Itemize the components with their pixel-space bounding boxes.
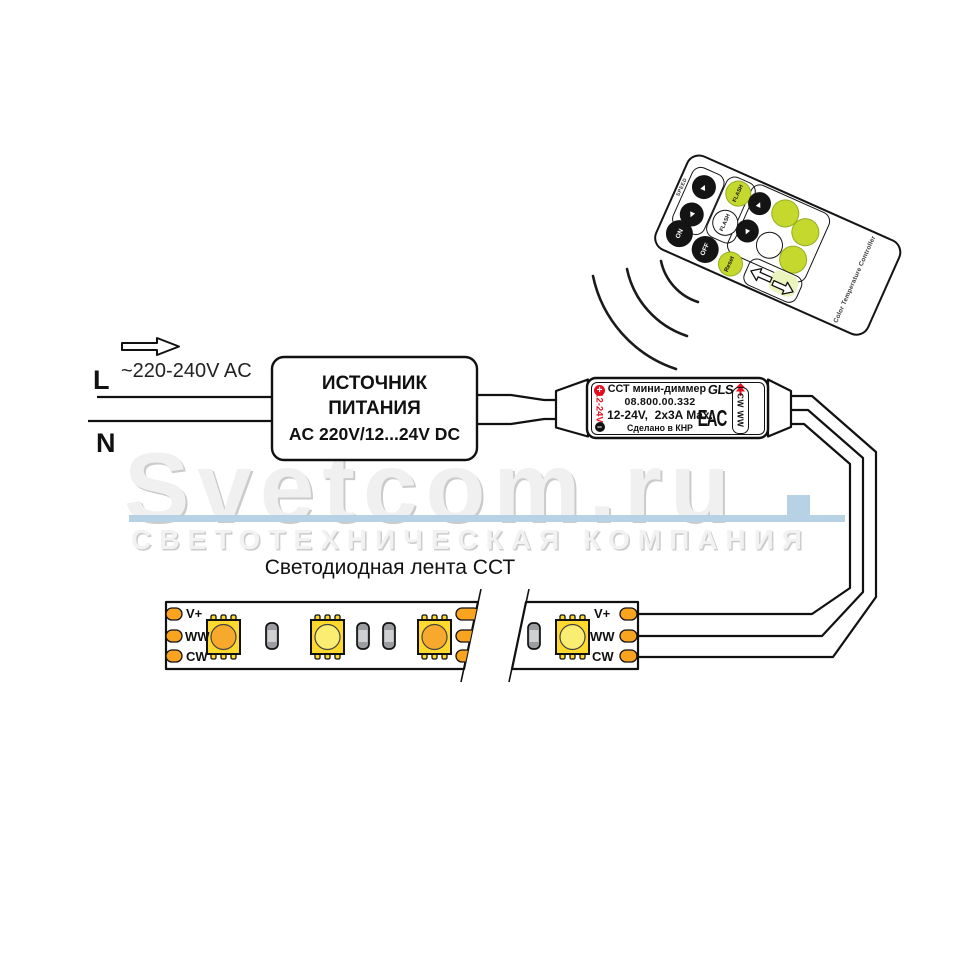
- dimmer-label: + 12-24V − ССТ мини-диммер GLS 08.800.00…: [587, 378, 768, 438]
- resistor: [383, 623, 395, 649]
- on-button-label: ON: [674, 228, 684, 240]
- pad-cw: [166, 650, 182, 662]
- psu-output-wire-bottom: [477, 419, 557, 424]
- pad-ww: [620, 630, 637, 642]
- psu-output-wire-top: [477, 395, 557, 400]
- dimmer-lead-left: [556, 380, 588, 437]
- pad-vplus: [620, 608, 637, 620]
- output-wire-inner: [637, 424, 850, 614]
- dimmer-lead-right: [768, 380, 791, 437]
- resistor: [528, 623, 540, 649]
- psu-name-line2: ПИТАНИЯ: [328, 397, 420, 422]
- led-chip-warm: [418, 615, 451, 659]
- pad-ww: [456, 630, 480, 642]
- pad-cw: [620, 650, 637, 662]
- led-chip-cool: [311, 615, 344, 659]
- pad-label-vplus: V+: [186, 607, 202, 620]
- flash-button-label: FLASH: [732, 184, 745, 203]
- remote-side-label: Color Temperature Controller: [830, 232, 882, 328]
- psu-label: ИСТОЧНИК ПИТАНИЯ AC 220V/12...24V DC: [272, 357, 477, 460]
- ac-direction-arrow-icon: [122, 338, 179, 355]
- led-chip-warm: [207, 615, 240, 659]
- down-triangle-icon: ▼: [686, 208, 698, 221]
- strip-title: Светодиодная лента ССТ: [240, 556, 540, 580]
- dimmer-name: ССТ мини-диммер: [608, 383, 706, 395]
- eac-mark: EAC: [697, 398, 727, 438]
- down-triangle-icon: ▼: [741, 225, 753, 238]
- flash-button-label: FLASH: [719, 213, 732, 232]
- output-channels: CW WW: [736, 393, 746, 427]
- pad-label-ww: WW: [590, 630, 615, 643]
- diagram-graphics: [0, 0, 970, 970]
- up-triangle-icon: ▲: [698, 181, 710, 194]
- up-triangle-icon: ▲: [754, 197, 766, 210]
- mains-voltage-label: ~220-240V AC: [121, 361, 252, 381]
- ir-wave-icon: [627, 269, 687, 336]
- pad-label-ww: WW: [185, 630, 210, 643]
- psu-name-line1: ИСТОЧНИК: [322, 372, 427, 397]
- wiring-diagram-canvas: Svetcom.ru СВЕТОТЕХНИЧЕСКАЯ КОМПАНИЯ: [0, 0, 970, 970]
- pad-label-vplus: V+: [594, 607, 610, 620]
- gls-logo: GLS: [707, 382, 734, 397]
- psu-rating: AC 220V/12...24V DC: [289, 424, 460, 445]
- resistor: [357, 623, 369, 649]
- pad-ww: [166, 630, 182, 642]
- dimmer-title-row: ССТ мини-диммер GLS: [607, 383, 747, 396]
- live-label: L: [93, 367, 110, 394]
- resistor: [266, 623, 278, 649]
- reset-button-label: Reset: [724, 255, 736, 272]
- off-button-label: OFF: [699, 242, 711, 257]
- pad-vplus: [166, 608, 182, 620]
- led-chip-cool: [556, 615, 589, 659]
- neutral-label: N: [96, 430, 116, 457]
- ir-wave-icon: [661, 261, 698, 302]
- pad-label-cw: CW: [592, 650, 614, 663]
- pad-label-cw: CW: [186, 650, 208, 663]
- output-channels-box: CW WW: [732, 387, 749, 434]
